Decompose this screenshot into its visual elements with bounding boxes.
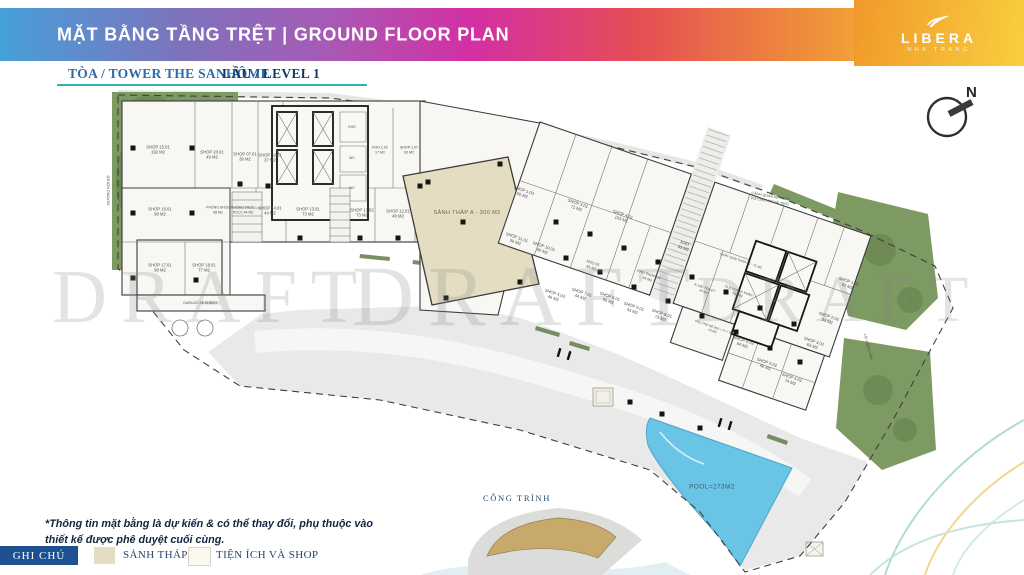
unit-label: SHOP 2.0253 M2 bbox=[816, 310, 840, 327]
disclaimer-note: *Thông tin mặt bằng là dự kiến & có thể … bbox=[45, 517, 397, 548]
unit-label: SHOP 13.0173 M2 bbox=[296, 207, 319, 218]
unit-label: CLB DOANH NHÂN100 M2 bbox=[723, 284, 754, 302]
unit-label: SHOP 3.0171 M2 bbox=[565, 197, 589, 214]
unit-label: KHO33 M2 bbox=[677, 239, 692, 253]
unit-label: SHOP 5.0246 M2 bbox=[754, 356, 778, 373]
level-label: LẦU / LEVEL 1 bbox=[222, 66, 320, 82]
unit-label: SHOP 1.0763 M2 bbox=[400, 145, 418, 154]
unit-label: SHOP 3.0263 M2 bbox=[801, 335, 825, 352]
unit-label: SHOP 13.0273 M2 bbox=[350, 208, 373, 219]
logo-tagline: NHA TRANG bbox=[907, 47, 971, 53]
unit-label: QUẦY ĐÓN THÁP B2 - 71 M2 bbox=[719, 252, 762, 270]
unit-label: KHO 1.0217 M2 bbox=[372, 145, 388, 154]
unit-label: ĐƯỜNG NỘI BỘ bbox=[107, 175, 112, 204]
unit-label: SHOP 1.0350 M2 bbox=[511, 184, 535, 201]
unit-label: SHOP 4.0274 M2 bbox=[779, 371, 803, 388]
unit-labels-layer: SHOP 15.01192 M2SHOP 20.0149 M2SHOP 07.0… bbox=[0, 0, 1024, 575]
unit-label: SHOP 15.01192 M2 bbox=[146, 145, 169, 156]
legend-swatch-shop bbox=[188, 547, 211, 566]
unit-label: PHÒNG SHCĐ58 M2 bbox=[206, 205, 230, 214]
unit-label: SHOP 17.0198 M2 bbox=[148, 263, 171, 274]
unit-label: SHOP 18.0177 M2 bbox=[192, 263, 215, 274]
unit-label: KHO SHOP 2A94 M2 bbox=[635, 269, 661, 286]
unit-label: SHOP 7.0144 M2 bbox=[569, 286, 593, 303]
unit-label: SHOP 07.0139 M2 bbox=[233, 152, 256, 163]
subheader-underline bbox=[57, 84, 367, 86]
unit-label: KHO 0555 M2 bbox=[584, 259, 600, 273]
unit-label: LỐI XUỐNG HẦM bbox=[862, 334, 873, 361]
unit-label: SHOP 4.01103 M2 bbox=[610, 208, 634, 225]
unit-label: PHỤ TRỢ BỂ BƠI + P. Y TẾ43 M2 bbox=[693, 319, 733, 339]
leaf-icon bbox=[926, 14, 952, 28]
site-key-label: CÔNG TRÌNH bbox=[483, 493, 551, 503]
slide: DRAFT DRAFT DRAFT SHOP 15.01192 M2SHOP 2… bbox=[0, 0, 1024, 575]
unit-label: SHOP 20.0149 M2 bbox=[200, 150, 223, 161]
unit-label: SHOP 8.0173 M2 bbox=[649, 307, 673, 324]
unit-label: KHO bbox=[348, 125, 355, 129]
north-label: N bbox=[966, 84, 977, 101]
legend-swatch-lobby bbox=[94, 547, 115, 564]
unit-label: SHOP 32.0137 M2 bbox=[258, 153, 281, 164]
unit-label: SHOP 9.0143 M2 bbox=[621, 300, 645, 317]
unit-label: SHOP 6.0264 M2 bbox=[731, 334, 755, 351]
unit-label: PHÒNG TRỰCPCCC 44 M2 bbox=[231, 205, 255, 214]
unit-label: SHOP 11.0150 M2 bbox=[503, 231, 528, 249]
lobby-label: SẢNH THÁP A - 300 M2 bbox=[433, 210, 500, 216]
unit-label: WC bbox=[349, 186, 355, 190]
unit-label: SHOP 4.0346 M2 bbox=[542, 287, 566, 304]
logo-name: LIBERA bbox=[901, 30, 977, 46]
unit-label: SHOP 14.0144 M2 bbox=[258, 206, 281, 217]
unit-label: A. WC TOILET45 M2 bbox=[692, 282, 715, 297]
page-title: MẶT BẰNG TẦNG TRỆT | GROUND FLOOR PLAN bbox=[57, 24, 509, 45]
unit-label: SHOP 10.0150 M2 bbox=[530, 240, 556, 258]
legend-title: GHI CHÚ bbox=[0, 546, 78, 565]
unit-label: SHOP 1.0253 M2 bbox=[836, 275, 860, 292]
unit-label: SHOP 6.0155 M2 bbox=[597, 290, 621, 307]
unit-label: WC bbox=[349, 156, 355, 160]
unit-label: SHOP 12.0148 M2 bbox=[386, 209, 409, 220]
unit-label: GARA ĐỖ XE KHÁCH bbox=[183, 301, 217, 305]
unit-label: SHOP 16.0198 M2 bbox=[148, 207, 171, 218]
north-compass-icon bbox=[918, 84, 988, 144]
unit-label: CẢNH QUAN KẾT HỢPVUI CHƠI NGOÀI TRỜI bbox=[750, 191, 790, 207]
pool-label: POOL=273M2 bbox=[689, 484, 735, 491]
brand-logo-panel: LIBERA NHA TRANG bbox=[854, 0, 1024, 66]
legend-label-shop: TIỆN ÍCH VÀ SHOP bbox=[216, 549, 318, 561]
